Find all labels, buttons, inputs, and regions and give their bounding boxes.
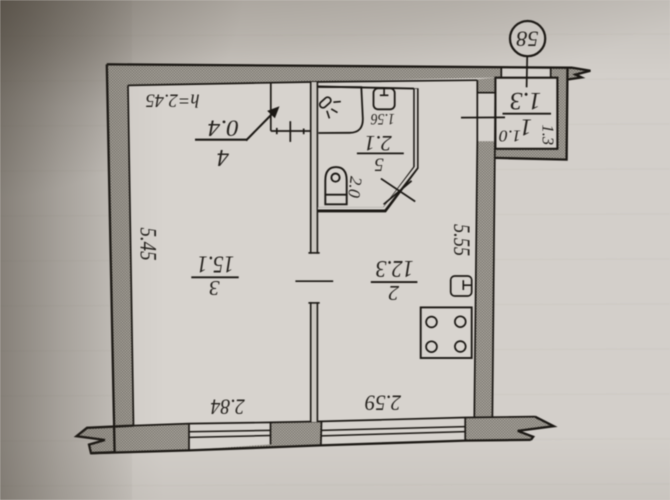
svg-text:0.4: 0.4 (208, 115, 239, 140)
svg-text:1.3: 1.3 (510, 87, 541, 114)
svg-text:2.1: 2.1 (364, 131, 392, 156)
svg-text:12.3: 12.3 (376, 255, 414, 282)
svg-text:15.1: 15.1 (197, 250, 234, 276)
svg-text:5: 5 (374, 154, 384, 175)
svg-text:2: 2 (388, 281, 399, 305)
svg-text:1.3: 1.3 (539, 124, 558, 145)
svg-text:1.0: 1.0 (498, 126, 521, 145)
svg-text:2.59: 2.59 (365, 390, 401, 415)
svg-text:5.55: 5.55 (449, 224, 474, 256)
svg-text:2.0: 2.0 (344, 175, 366, 199)
svg-text:1.56: 1.56 (371, 110, 395, 127)
svg-text:3: 3 (209, 276, 221, 300)
svg-text:2.84: 2.84 (211, 395, 245, 420)
svg-text:4: 4 (217, 144, 229, 170)
